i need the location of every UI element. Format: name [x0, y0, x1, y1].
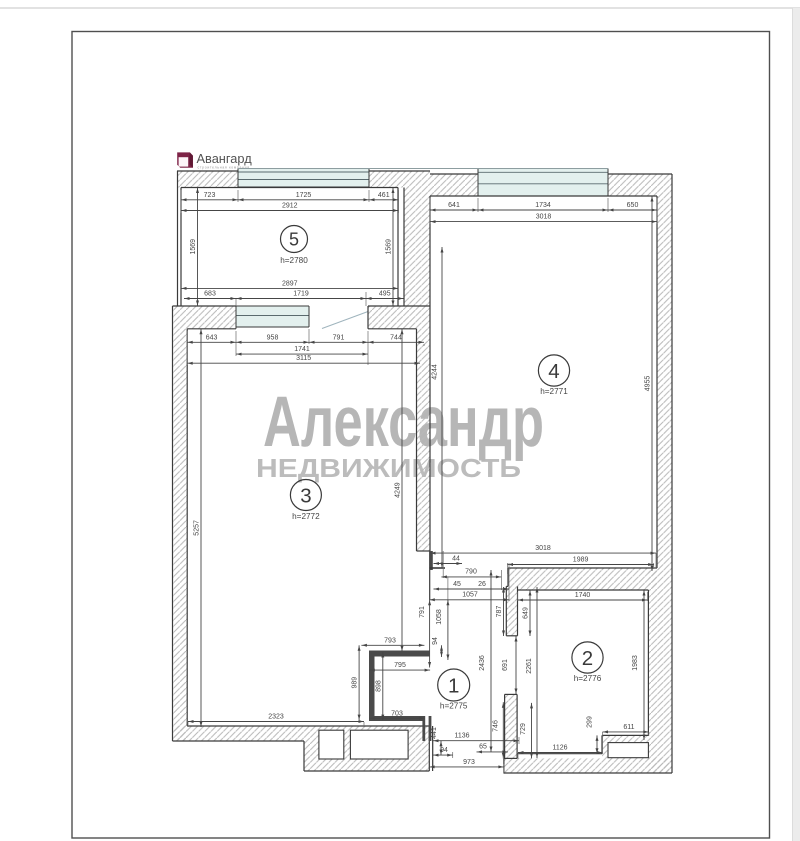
svg-text:65: 65 — [479, 744, 487, 751]
svg-text:2: 2 — [582, 647, 593, 670]
svg-text:791: 791 — [333, 334, 345, 341]
svg-text:746: 746 — [493, 720, 500, 732]
svg-text:1989: 1989 — [573, 557, 589, 564]
svg-text:744: 744 — [390, 334, 402, 341]
svg-text:44: 44 — [452, 555, 460, 562]
svg-text:791: 791 — [419, 606, 426, 618]
svg-text:461: 461 — [378, 192, 390, 199]
svg-text:723: 723 — [204, 192, 216, 199]
svg-text:2323: 2323 — [268, 714, 284, 721]
svg-text:45: 45 — [453, 581, 461, 588]
svg-text:1734: 1734 — [535, 202, 551, 209]
svg-text:683: 683 — [204, 291, 216, 298]
svg-text:3: 3 — [300, 484, 311, 507]
svg-text:1: 1 — [448, 674, 459, 697]
svg-text:989: 989 — [352, 677, 359, 689]
svg-text:Авангард: Авангард — [197, 151, 253, 166]
svg-text:1725: 1725 — [296, 192, 312, 199]
svg-text:h=2771: h=2771 — [540, 387, 568, 396]
svg-text:h=2775: h=2775 — [440, 702, 468, 711]
svg-text:729: 729 — [520, 723, 527, 735]
svg-text:1740: 1740 — [575, 592, 591, 599]
svg-text:1126: 1126 — [552, 745, 567, 752]
svg-text:1136: 1136 — [454, 733, 469, 740]
svg-text:1741: 1741 — [294, 346, 310, 353]
svg-text:94: 94 — [432, 637, 439, 645]
svg-text:643: 643 — [206, 334, 218, 341]
svg-text:795: 795 — [394, 662, 406, 669]
svg-text:973: 973 — [463, 759, 475, 766]
svg-text:641: 641 — [448, 202, 460, 209]
svg-text:2261: 2261 — [526, 658, 533, 674]
svg-text:958: 958 — [267, 334, 279, 341]
svg-text:4955: 4955 — [645, 376, 652, 392]
svg-text:787: 787 — [496, 606, 503, 618]
svg-text:691: 691 — [502, 659, 509, 671]
svg-text:1569: 1569 — [386, 239, 393, 255]
svg-text:3018: 3018 — [536, 214, 552, 221]
svg-text:611: 611 — [623, 724, 634, 731]
svg-text:4: 4 — [548, 360, 559, 383]
svg-text:649: 649 — [523, 607, 530, 619]
svg-text:3115: 3115 — [296, 355, 311, 362]
svg-text:2897: 2897 — [282, 280, 298, 287]
svg-text:1057: 1057 — [462, 592, 478, 599]
svg-text:h=2776: h=2776 — [574, 674, 602, 683]
svg-text:1569: 1569 — [190, 239, 197, 255]
svg-text:1058: 1058 — [436, 609, 443, 625]
svg-text:793: 793 — [384, 637, 396, 644]
svg-text:650: 650 — [627, 202, 639, 209]
svg-text:898: 898 — [375, 680, 382, 692]
svg-text:h=2780: h=2780 — [280, 256, 308, 265]
svg-text:495: 495 — [379, 291, 391, 298]
svg-text:4249: 4249 — [395, 482, 402, 498]
svg-text:4244: 4244 — [432, 364, 439, 380]
svg-text:790: 790 — [465, 569, 477, 576]
svg-text:703: 703 — [391, 710, 403, 717]
svg-text:1983: 1983 — [632, 655, 639, 671]
svg-text:h=2772: h=2772 — [292, 512, 320, 521]
svg-text:26: 26 — [478, 581, 486, 588]
svg-text:2912: 2912 — [282, 203, 298, 210]
svg-text:299: 299 — [587, 716, 594, 728]
svg-text:2436: 2436 — [479, 655, 486, 671]
svg-text:Александр: Александр — [263, 383, 544, 462]
svg-text:3018: 3018 — [535, 545, 551, 552]
svg-text:5257: 5257 — [194, 520, 201, 536]
svg-text:НЕДВИЖИМОСТЬ: НЕДВИЖИМОСТЬ — [256, 455, 521, 483]
svg-text:441: 441 — [431, 727, 438, 739]
svg-text:5: 5 — [289, 230, 299, 250]
svg-text:1719: 1719 — [293, 291, 309, 298]
